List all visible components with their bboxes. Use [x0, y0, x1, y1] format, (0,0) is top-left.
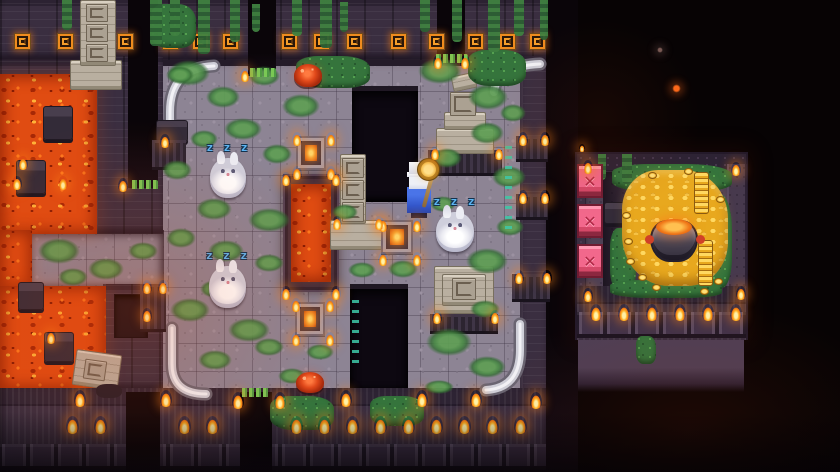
vignette-overlay: [0, 0, 840, 472]
bottom-fade-overlay: [0, 412, 840, 472]
game-viewport: ✕✕✕z z zz z zz z z: [0, 0, 840, 472]
